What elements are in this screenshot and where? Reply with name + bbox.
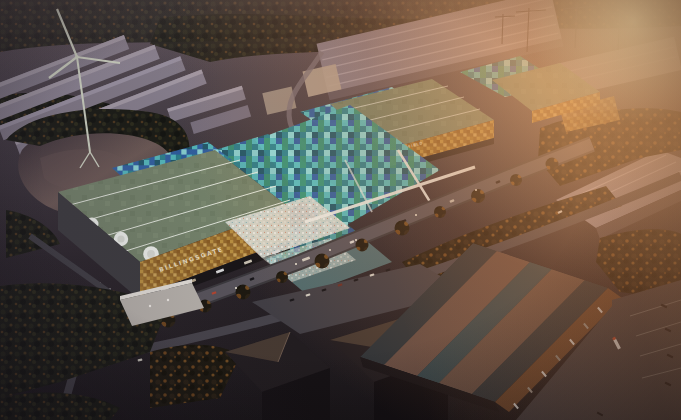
scene-canvas: SMITHFIELD [0,0,681,420]
aerial-render: SMITHFIELD [0,0,681,420]
